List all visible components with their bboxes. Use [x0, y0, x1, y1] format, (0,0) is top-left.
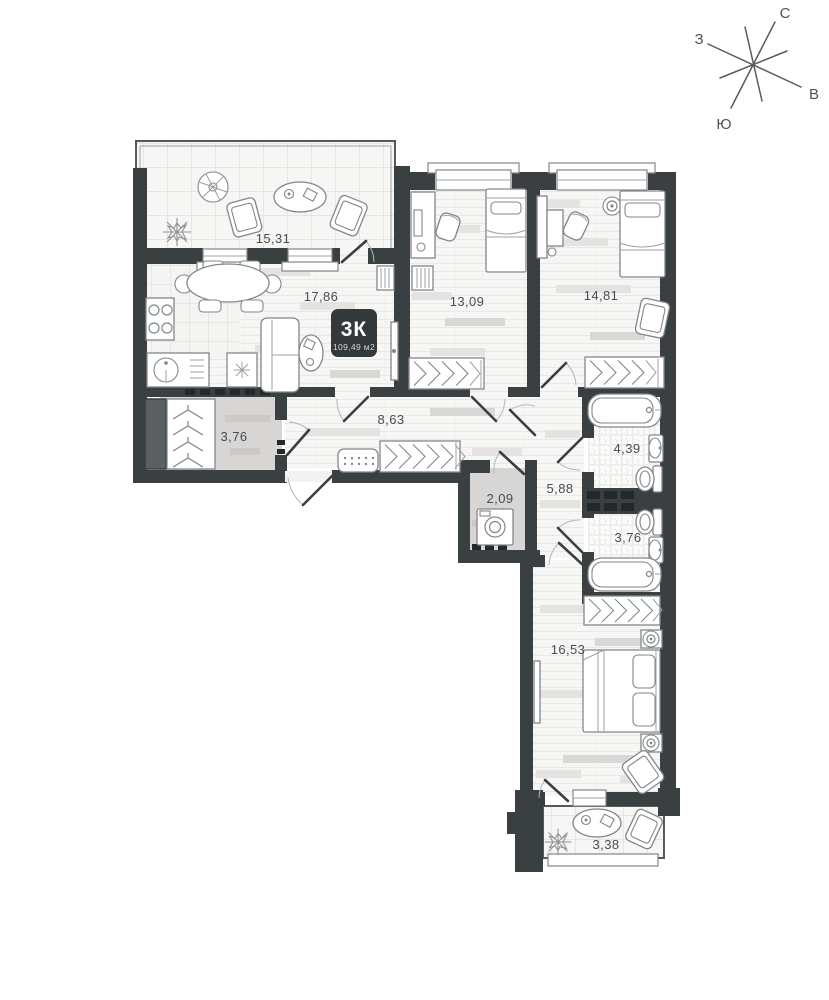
- apartment-area-label: 109,49 м2: [333, 342, 375, 352]
- coffee-table-icon: [299, 335, 323, 371]
- compass-east-label: В: [809, 86, 819, 103]
- coffee-table-icon: [573, 809, 621, 837]
- hanger-rack-icon: [167, 399, 215, 469]
- area-label-wardrobe: 3,76: [221, 429, 248, 444]
- area-label-balcony-top: 15,31: [256, 231, 291, 246]
- coffee-table-icon: [274, 182, 326, 212]
- duct-shaft: [145, 399, 166, 469]
- kitchen-sink-icon: [147, 353, 209, 387]
- wardrobe-icon: [584, 596, 662, 625]
- wardrobe-icon: [409, 358, 484, 389]
- washing-machine-icon: [477, 509, 513, 545]
- sofa-icon: [261, 318, 299, 392]
- sink-icon: [649, 435, 663, 462]
- stove-icon: [146, 298, 174, 340]
- bed-icon: [486, 189, 526, 272]
- area-label-living: 17,86: [304, 289, 339, 304]
- tv-icon: [391, 322, 398, 380]
- desk-icon: [411, 192, 435, 258]
- apartment-badge: 3К 109,49 м2: [331, 309, 377, 357]
- window-sill: [548, 854, 658, 866]
- area-label-bedroom2: 14,81: [584, 288, 619, 303]
- tv-icon: [534, 661, 540, 723]
- area-label-bathroom1: 4,39: [614, 441, 641, 456]
- ceiling-lamp-icon: [603, 197, 621, 215]
- bookshelf-icon: [377, 266, 394, 290]
- area-label-bedroom1: 13,09: [450, 294, 485, 309]
- window-sill: [282, 262, 338, 271]
- plant-icon: [545, 829, 572, 856]
- bathtub-icon: [588, 394, 661, 427]
- bed-icon: [620, 191, 665, 277]
- bookshelf-icon: [412, 266, 433, 290]
- area-label-hallway: 8,63: [378, 412, 405, 427]
- ceiling-fan-icon: [198, 172, 228, 202]
- compass-north-label: С: [780, 5, 791, 22]
- wardrobe-icon: [585, 357, 664, 388]
- entrance-threshold: [285, 471, 332, 482]
- nightstand-icon: [641, 734, 662, 752]
- compass-rose-icon: С З В Ю: [694, 5, 819, 133]
- floor-plan-page: С З В Ю: [0, 0, 829, 1000]
- bathtub-icon: [588, 558, 661, 591]
- wardrobe-icon: [380, 441, 465, 472]
- area-label-hall2: 5,88: [547, 481, 574, 496]
- toilet-icon: [636, 466, 662, 492]
- fridge-icon: [227, 353, 257, 387]
- compass-west-label: З: [694, 31, 703, 48]
- area-label-laundry: 2,09: [487, 491, 514, 506]
- area-label-bathroom2: 3,76: [615, 530, 642, 545]
- compass-south-label: Ю: [716, 116, 731, 133]
- floor-plan: С З В Ю: [0, 0, 829, 1000]
- area-label-balcony-bottom: 3,38: [593, 837, 620, 852]
- apartment-type-label: 3К: [341, 318, 368, 341]
- plant-icon: [163, 218, 191, 246]
- area-label-bedroom3: 16,53: [551, 642, 586, 657]
- nightstand-icon: [641, 630, 662, 648]
- doormat-icon: [338, 449, 378, 472]
- double-bed-icon: [583, 650, 660, 732]
